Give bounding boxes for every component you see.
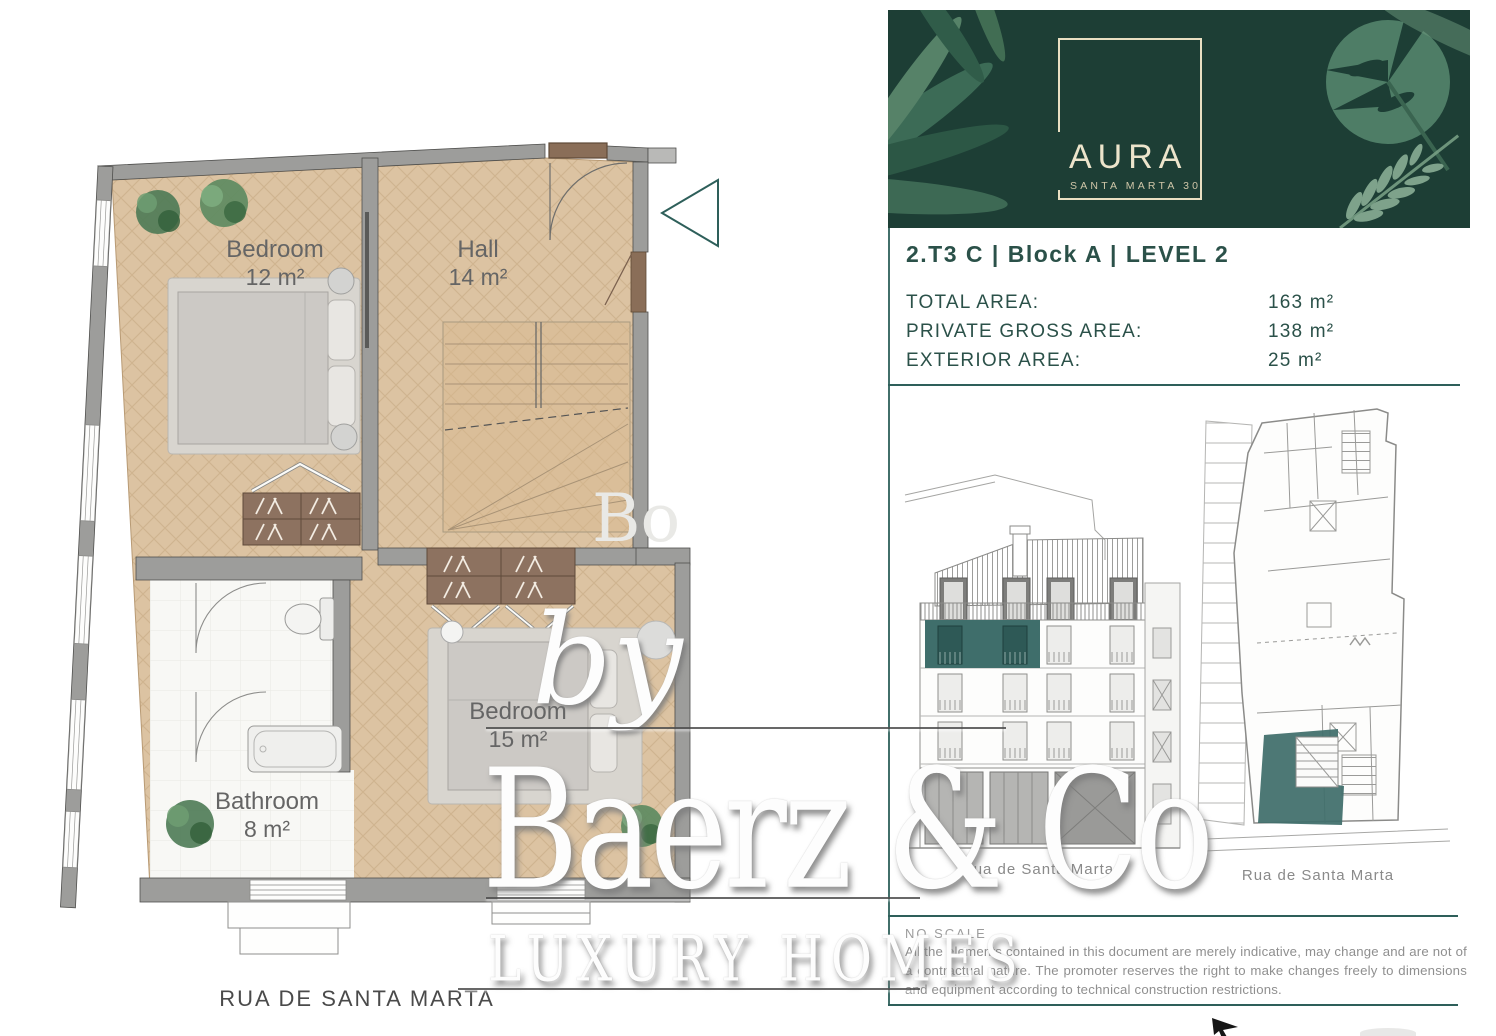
plant [621,805,663,847]
plant [200,179,248,227]
aura-logo-frame: AURA SANTA MARTA 30 [1058,38,1202,200]
mouse-cursor-icon [1212,1016,1242,1036]
round-rug [637,621,675,659]
siteplan-caption: Rua de Santa Marta [1228,867,1408,884]
bed-1 [168,278,360,454]
separator-line [888,384,1460,386]
site-plan-drawing [1192,393,1462,863]
elevation-drawing [895,418,1185,858]
area-value: 163 m² [1268,292,1334,314]
area-row: PRIVATE GROSS AREA: 138 m² [906,321,1466,345]
floor-plan-drawing [0,0,888,1036]
stool [441,621,463,643]
elevation-caption: Rua de Santa Marta [948,861,1128,878]
area-label: EXTERIOR AREA: [906,350,1081,371]
area-row: EXTERIOR AREA: 25 m² [906,350,1466,374]
watermark-rule [486,727,1006,729]
area-label: TOTAL AREA: [906,292,1039,313]
panel-divider [888,228,890,1006]
logo-title: AURA [1069,138,1187,177]
separator-line [888,915,1458,917]
area-table: TOTAL AREA: 163 m² PRIVATE GROSS AREA: 1… [906,292,1466,374]
room-label-bedroom1: Bedroom 12 m² [190,236,360,290]
unit-title: 2.T3 C | Block A | LEVEL 2 [906,241,1229,268]
room-label-bedroom2: Bedroom 15 m² [433,698,603,752]
stool [331,424,357,450]
watermark-rule [458,988,920,990]
bathtub [248,726,342,772]
logo-subtitle: SANTA MARTA 30 [1070,180,1201,192]
disclaimer-text: All the elements contained in this docum… [905,942,1467,999]
brand-banner: AURA SANTA MARTA 30 [888,10,1470,228]
area-label: PRIVATE GROSS AREA: [906,321,1142,342]
balconies [228,902,590,954]
room-label-hall: Hall 14 m² [393,236,563,290]
plant [136,190,180,234]
brochure-page: Bedroom 12 m² Hall 14 m² Bathroom 8 m² B… [0,0,1496,1036]
room-label-bathroom: Bathroom 8 m² [182,788,352,842]
highlighted-unit [1258,729,1344,825]
area-row: TOTAL AREA: 163 m² [906,292,1466,316]
bottom-edge-artifact [1360,1028,1416,1036]
separator-line [888,1004,1458,1006]
faint-watermark-fragment: Bo [592,486,680,552]
area-value: 138 m² [1268,321,1334,343]
logo-border-break [1056,132,1065,190]
direction-triangle-icon [662,180,718,246]
monstera-leaf [1326,20,1450,170]
watermark-rule [486,897,920,899]
area-value: 25 m² [1268,350,1323,372]
no-scale-label: NO SCALE [905,926,987,941]
sliding-door [365,212,369,348]
